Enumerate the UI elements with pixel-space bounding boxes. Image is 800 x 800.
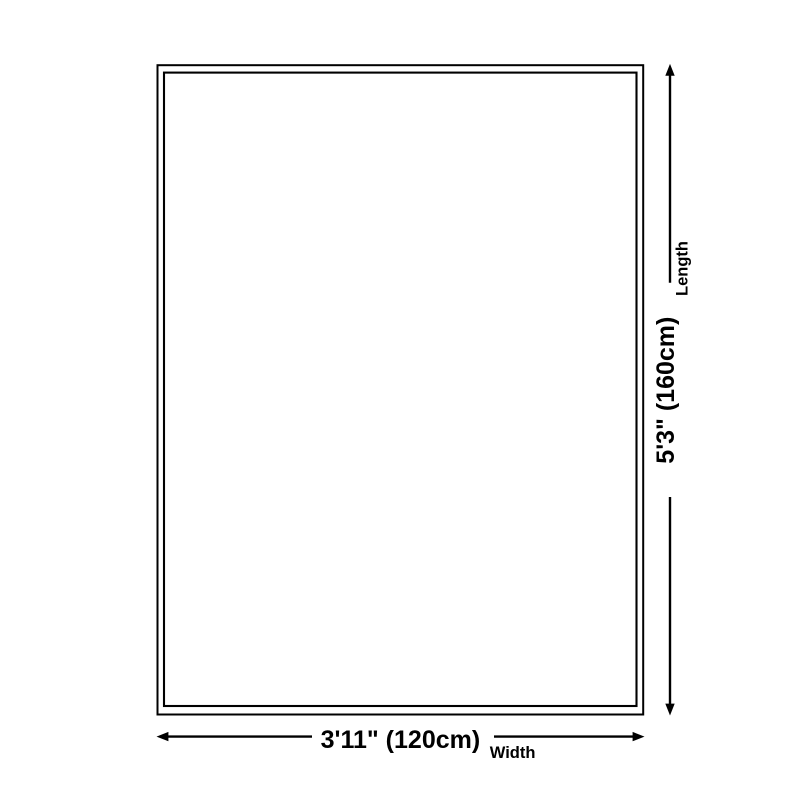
svg-text:5'3" (160cm): 5'3" (160cm) <box>652 317 680 464</box>
svg-text:Width: Width <box>490 744 536 762</box>
svg-text:Length: Length <box>673 241 691 296</box>
svg-text:3'11" (120cm): 3'11" (120cm) <box>321 726 481 754</box>
